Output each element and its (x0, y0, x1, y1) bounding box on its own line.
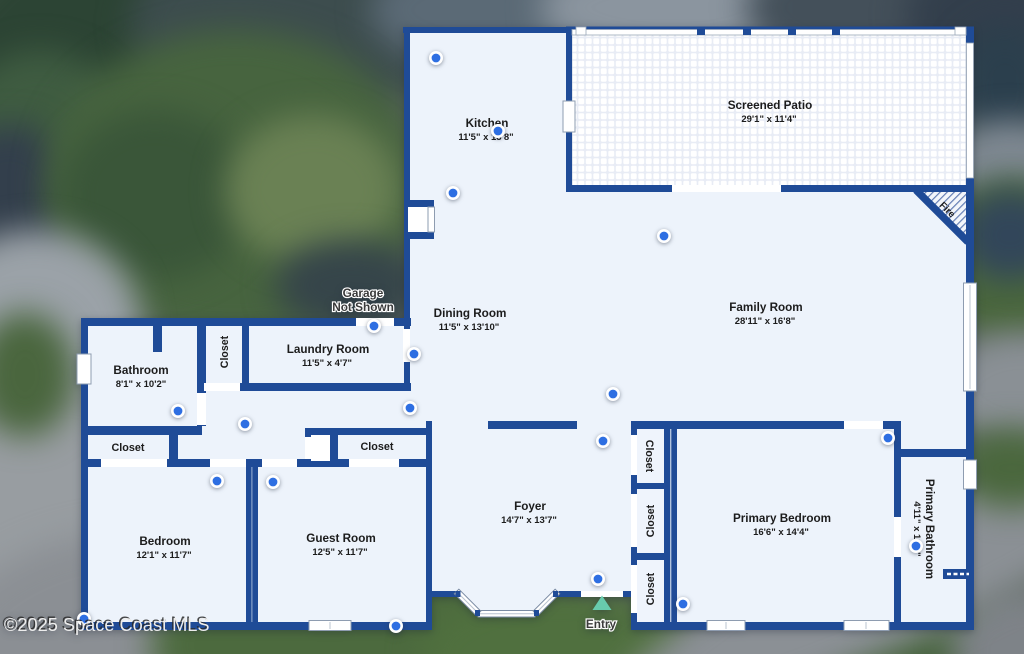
svg-text:29'1" x 11'4": 29'1" x 11'4" (741, 114, 796, 125)
svg-text:©2025 Space Coast MLS: ©2025 Space Coast MLS (4, 615, 210, 635)
svg-text:Screened Patio: Screened Patio (728, 99, 812, 112)
svg-text:Closet: Closet (645, 572, 657, 605)
svg-text:12'1" x 11'7": 12'1" x 11'7" (136, 550, 191, 561)
svg-text:8'1" x 10'2": 8'1" x 10'2" (116, 379, 167, 390)
svg-text:28'11" x 16'8": 28'11" x 16'8" (735, 316, 796, 327)
svg-text:14'7" x 13'7": 14'7" x 13'7" (501, 515, 557, 526)
svg-text:Family Room: Family Room (729, 301, 802, 314)
svg-text:16'6" x 14'4": 16'6" x 14'4" (753, 527, 809, 538)
svg-text:Closet: Closet (643, 440, 655, 473)
svg-text:Not Shown: Not Shown (332, 300, 394, 314)
svg-text:11'5" x 13'8": 11'5" x 13'8" (458, 132, 513, 143)
svg-text:Closet: Closet (645, 504, 657, 537)
svg-text:Primary Bathroom: Primary Bathroom (923, 479, 935, 579)
svg-text:Foyer: Foyer (514, 500, 546, 513)
svg-text:Dining Room: Dining Room (434, 307, 507, 320)
svg-text:Closet: Closet (112, 442, 145, 454)
svg-text:Primary Bedroom: Primary Bedroom (733, 512, 831, 525)
svg-text:Guest Room: Guest Room (306, 532, 375, 545)
svg-text:Closet: Closet (219, 335, 231, 368)
svg-text:Bathroom: Bathroom (113, 364, 168, 377)
svg-text:11'5" x 13'10": 11'5" x 13'10" (439, 322, 500, 333)
svg-text:Laundry Room: Laundry Room (287, 343, 369, 356)
svg-text:Bedroom: Bedroom (139, 535, 190, 548)
svg-text:Entry: Entry (586, 617, 617, 631)
svg-text:11'5" x 4'7": 11'5" x 4'7" (302, 358, 352, 369)
svg-text:Garage: Garage (343, 286, 384, 300)
svg-text:12'5" x 11'7": 12'5" x 11'7" (312, 547, 367, 558)
svg-text:Closet: Closet (361, 441, 394, 453)
